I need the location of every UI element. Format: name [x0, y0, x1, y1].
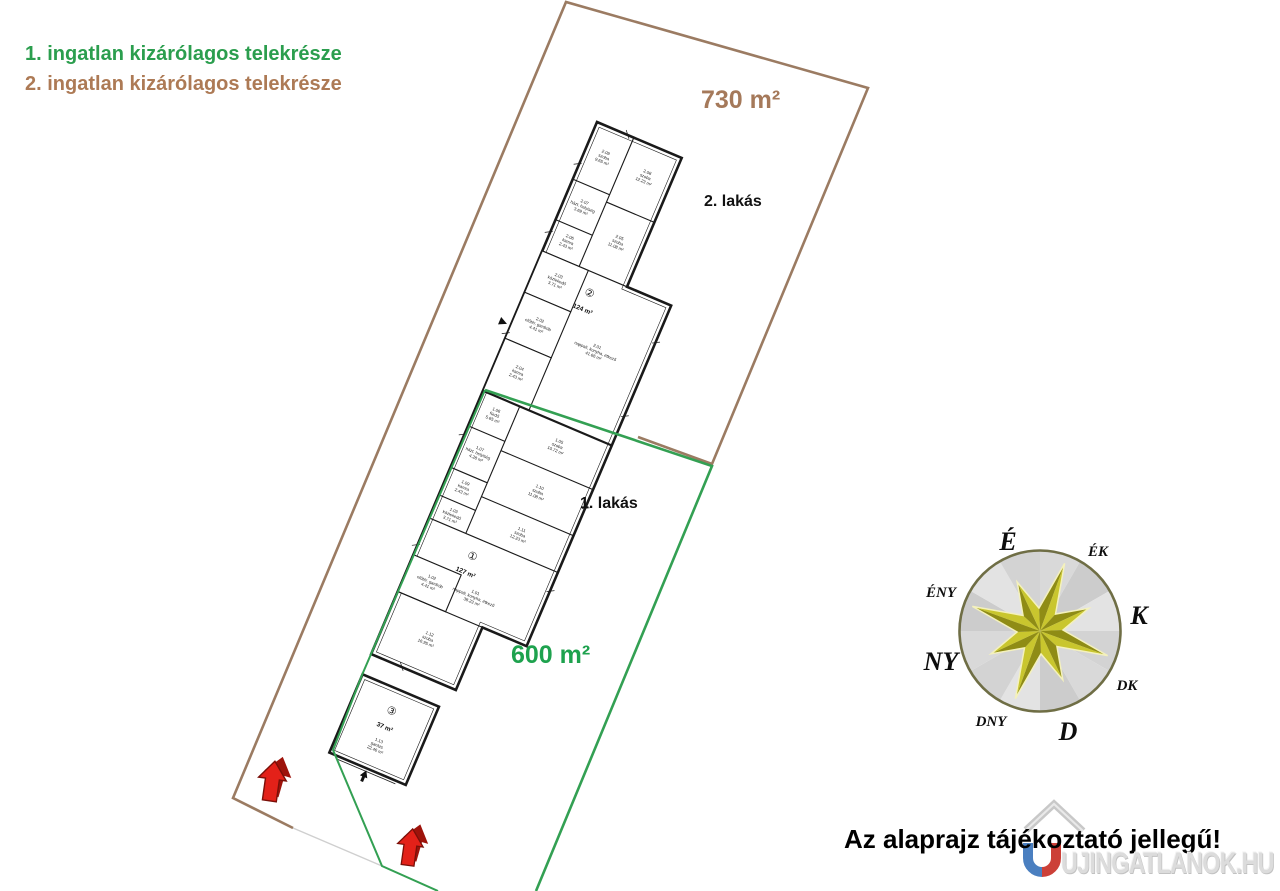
compass-label-se: DK [1116, 678, 1139, 694]
building-floorplan: ② 124 m² 2.09 szoba 9.65 m² 2.08 szoba 1… [313, 114, 731, 822]
plot2-area-label: 730 m² [701, 86, 780, 115]
legend-plot1: 1. ingatlan kizárólagos telekrésze [25, 43, 342, 66]
compass-label-ne: ÉK [1087, 543, 1109, 560]
plot2-unit-label: 2. lakás [704, 193, 762, 211]
house-outline [371, 122, 726, 709]
watermark-text: UJINGATLANOK.HU [1061, 847, 1274, 881]
site-plan-drawing: ② 124 m² 2.09 szoba 9.65 m² 2.08 szoba 1… [0, 0, 1280, 891]
compass-rose: É ÉK K DK D DNY NY ÉNY [923, 527, 1150, 746]
compass-label-sw: DNY [975, 714, 1009, 730]
compass-label-w: NY [923, 647, 961, 676]
site-plan-page: ② 124 m² 2.09 szoba 9.65 m² 2.08 szoba 1… [0, 0, 1280, 891]
plot1-unit-label: 1. lakás [580, 495, 638, 513]
plot1-area-label: 600 m² [511, 641, 590, 670]
red-arrow-plot1 [395, 821, 433, 867]
entrance-arrow-icon [498, 317, 508, 327]
compass-label-e: K [1129, 601, 1149, 630]
compass-label-n: É [998, 527, 1016, 556]
red-arrow-plot2 [255, 753, 296, 803]
garage-entrance-arrow-icon [358, 769, 370, 783]
compass-label-s: D [1058, 717, 1078, 746]
legend-plot2: 2. ingatlan kizárólagos telekrésze [25, 73, 342, 96]
compass-label-nw: ÉNY [925, 584, 958, 601]
